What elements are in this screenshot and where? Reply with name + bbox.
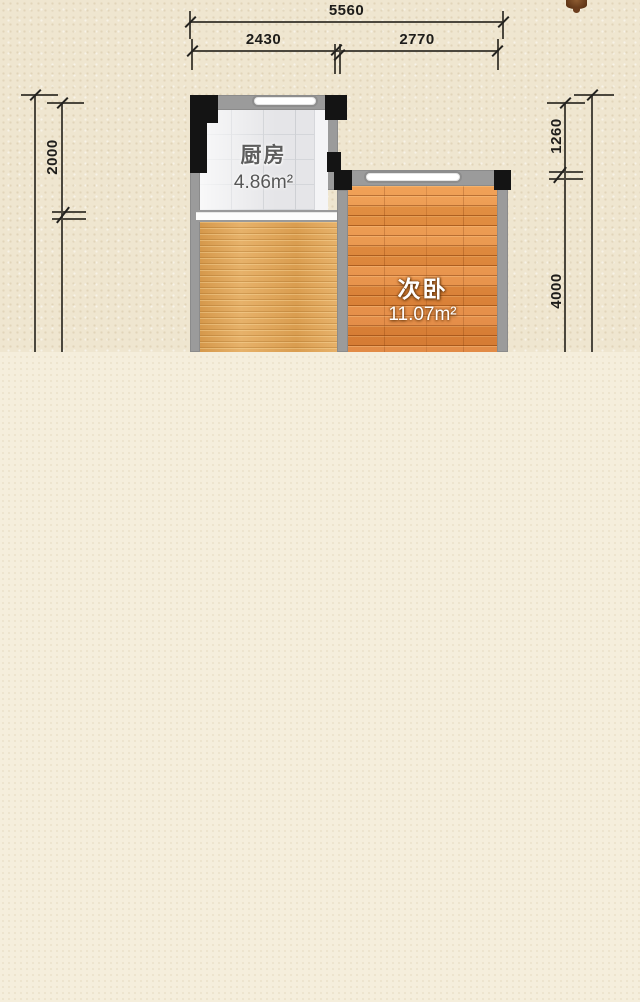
pier-bedroom-top-right <box>494 170 511 190</box>
dim-break-bar <box>549 171 583 173</box>
floorplan-image: 5560 2430 2770 2000 1260 4000 <box>0 0 640 1002</box>
pier-bedroom-top-left <box>334 170 352 190</box>
dim-label-width-right: 2770 <box>335 32 499 48</box>
wall-divider-middle <box>337 190 348 352</box>
cropped-decor-stem <box>573 7 580 13</box>
plan-paper-background: 5560 2430 2770 2000 1260 4000 <box>0 0 640 352</box>
dim-line-left-outer <box>34 94 36 352</box>
pier-kitchen-top-left <box>190 95 218 123</box>
bedroom-floor <box>348 186 497 352</box>
wall-bedroom-right <box>497 186 508 352</box>
dim-label-right-bottom: 4000 <box>549 256 565 326</box>
dim-break-bar <box>52 211 86 213</box>
pier-kitchen-right-mid <box>327 152 341 172</box>
kitchen-window <box>252 95 318 107</box>
lower-room-floor <box>200 222 337 352</box>
dim-break-slash <box>56 207 70 224</box>
dim-label-total-width: 5560 <box>190 3 503 19</box>
kitchen-label: 厨房 <box>200 139 327 169</box>
dim-line-right-outer <box>591 94 593 352</box>
kitchen-area-label: 4.86m² <box>200 172 327 194</box>
dim-label-width-left: 2430 <box>192 32 335 48</box>
bedroom-window <box>364 171 462 183</box>
dim-line-total-width <box>190 21 503 23</box>
dim-endbar <box>21 94 58 96</box>
pier-kitchen-top-right <box>325 95 347 120</box>
bedroom-label: 次卧 <box>348 270 497 304</box>
kitchen-sliding-divider <box>196 210 342 222</box>
dim-label-left-height: 2000 <box>45 122 61 192</box>
dim-endbar <box>47 102 84 104</box>
dim-label-right-top: 1260 <box>549 101 565 171</box>
bedroom-area-label: 11.07m² <box>348 304 497 326</box>
dim-line-left-inner <box>61 102 63 352</box>
